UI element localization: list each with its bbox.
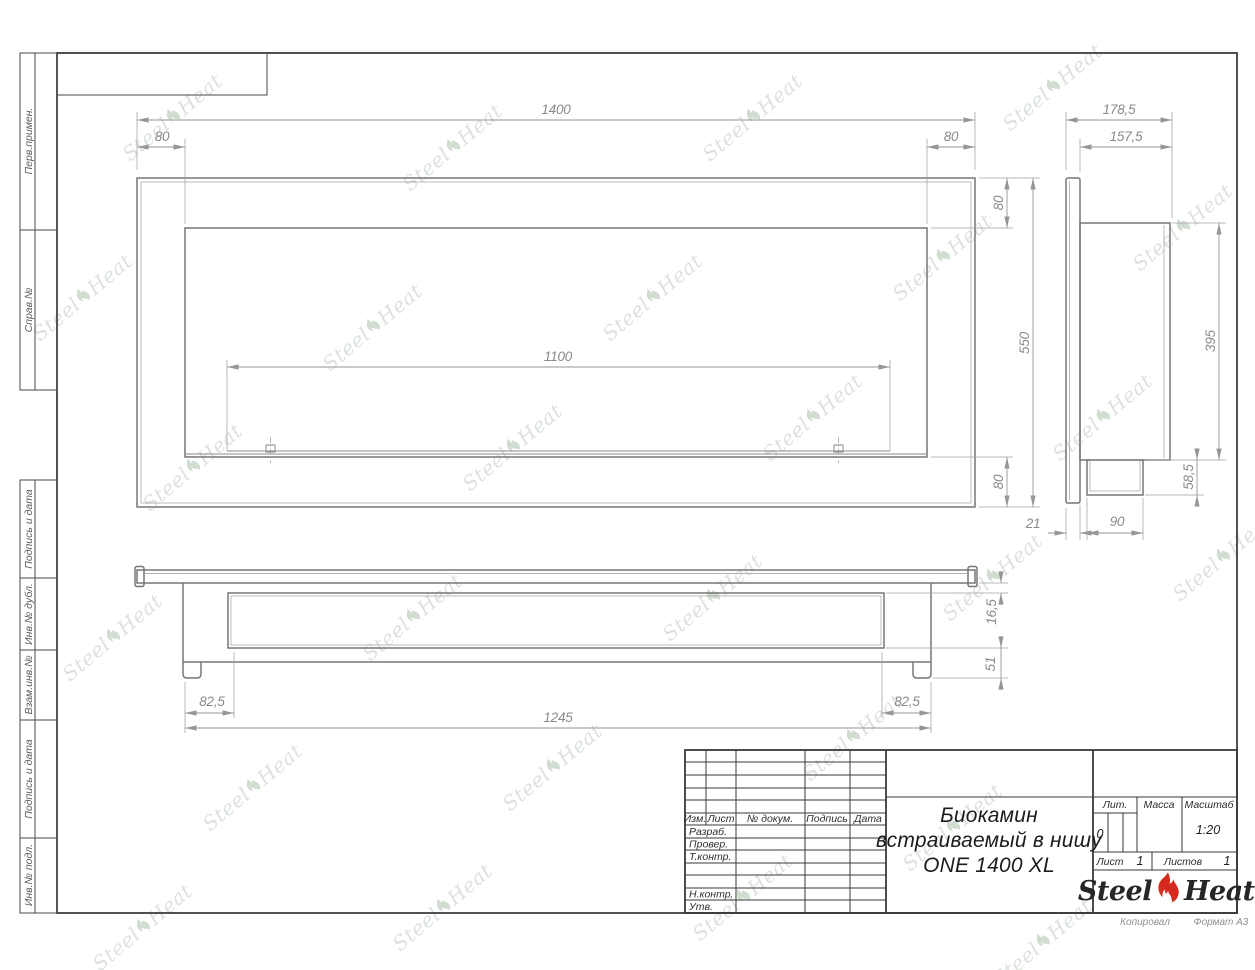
svg-text:Steel: Steel [498,763,555,816]
svg-text:Steel: Steel [698,113,755,166]
dim-front-offset-right: 80 [944,129,959,144]
th-izm: Изм. [684,813,706,825]
front-view [137,178,975,507]
svg-text:Heat: Heat [652,248,708,300]
svg-text:Steel: Steel [198,783,255,836]
copied-label: Копировал [1120,917,1170,928]
scale-label: Масштаб [1184,799,1234,811]
dim-front-width: 1400 [541,102,571,117]
lit-value: 0 [1097,827,1104,841]
svg-text:Heat: Heat [142,878,198,930]
dim-front-bottom: 80 [991,474,1006,489]
svg-text:Heat: Heat [992,528,1048,580]
svg-text:Heat: Heat [1102,368,1158,420]
dim-side-notch: 58,5 [1181,464,1196,490]
svg-text:Heat: Heat [452,98,508,150]
svg-text:Steel: Steel [658,593,715,646]
svg-text:Steel: Steel [58,633,115,686]
svg-text:Heat: Heat [942,208,998,260]
svg-text:Steel: Steel [88,923,145,970]
svg-text:Heat: Heat [512,398,568,450]
sheet-label: Лист [1095,856,1123,868]
svg-text:Steel: Steel [1168,553,1225,606]
dim-side-body: 395 [1203,329,1218,352]
dim-front-height: 550 [1017,331,1032,354]
margin-label-sprav-no: Справ.№ [23,288,35,333]
svg-text:Steel: Steel [388,903,445,956]
sheets-label: Листов [1163,856,1203,868]
doc-name-line3: ONE 1400 XL [923,854,1055,877]
svg-text:Steel: Steel [138,463,195,516]
th-doc: № докум. [747,813,793,825]
svg-text:Steel: Steel [988,938,1045,970]
scale-value: 1:20 [1196,823,1220,837]
dim-front-offset-left: 80 [155,129,170,144]
dim-front-opening: 1100 [544,349,573,364]
svg-text:Heat: Heat [752,68,808,120]
engineering-drawing-canvas: SteelHeatSteelHeatSteelHeatSteelHeatStee… [0,0,1255,970]
logo-heat-text: Heat [1183,876,1255,907]
th-list: Лист [706,813,734,825]
steelheat-logo: Steel Heat [1078,872,1255,907]
logo-steel-text: Steel [1078,876,1152,907]
margin-label-inv-podl: Инв.№ подл. [23,844,35,906]
lit-label: Лит. [1102,799,1128,811]
svg-text:Steel: Steel [1048,413,1105,466]
svg-text:Steel: Steel [358,613,415,666]
margin-labels: Перв.примен. Справ.№ Подпись и дата Инв.… [23,108,35,907]
svg-text:Steel: Steel [398,143,455,196]
svg-text:Steel: Steel [318,323,375,376]
svg-text:Steel: Steel [758,413,815,466]
dim-bottom-offset-right: 82,5 [894,694,920,709]
dim-bottom-offset-left: 82,5 [199,694,225,709]
flame-icon [1158,872,1178,902]
row-utv: Утв. [688,901,713,913]
margin-label-perv-primen: Перв.примен. [23,108,35,175]
svg-text:Steel: Steel [1128,223,1185,276]
row-nkontr: Н.контр. [689,889,733,901]
dim-bottom-foot: 51 [983,657,998,672]
svg-text:Heat: Heat [1052,38,1108,90]
svg-text:Steel: Steel [998,83,1055,136]
dim-side-plate: 21 [1025,516,1041,531]
svg-text:Heat: Heat [412,568,468,620]
th-date: Дата [853,813,882,825]
dim-front-top: 80 [991,195,1006,210]
margin-label-podpis-data-1: Подпись и дата [23,489,35,569]
doc-name-line2: встраиваемый в нишу [876,829,1103,852]
svg-text:Steel: Steel [598,293,655,346]
mass-label: Масса [1143,799,1174,811]
svg-text:Heat: Heat [252,738,308,790]
svg-text:Steel: Steel [798,733,855,786]
margin-label-podpis-data-2: Подпись и дата [23,739,35,819]
svg-text:Heat: Heat [112,588,168,640]
svg-text:Heat: Heat [742,848,798,900]
svg-text:Steel: Steel [888,253,945,306]
svg-text:Heat: Heat [552,718,608,770]
row-razrab: Разраб. [689,826,727,838]
th-sign: Подпись [806,813,848,825]
sheet-value: 1 [1137,854,1144,868]
svg-text:Heat: Heat [812,368,868,420]
blueprint-page: SteelHeatSteelHeatSteelHeatSteelHeatStee… [0,0,1255,970]
side-view-dimensions: 178,5 157,5 395 58,5 21 90 [1025,102,1226,540]
doc-name-line1: Биокамин [940,804,1038,827]
format-label: Формат А3 [1194,917,1249,928]
row-tkontr: Т.контр. [689,851,731,863]
svg-text:Heat: Heat [372,278,428,330]
dim-side-inner-depth: 157,5 [1110,129,1143,144]
title-block: Изм. Лист № докум. Подпись Дата Разраб. … [684,750,1255,928]
side-view [1066,178,1170,503]
row-prover: Провер. [689,839,728,851]
sheets-value: 1 [1224,854,1231,868]
bottom-view [135,567,977,679]
svg-text:Heat: Heat [82,248,138,300]
margin-label-inv-dubl: Инв.№ дубл. [23,583,35,645]
margin-label-vzam-inv: Взам.инв.№ [23,655,35,714]
svg-text:Heat: Heat [442,858,498,910]
svg-text:Heat: Heat [192,418,248,470]
dim-side-box: 90 [1110,514,1125,529]
dim-bottom-lip: 16,5 [984,599,999,625]
svg-text:Heat: Heat [172,68,228,120]
dim-side-depth: 178,5 [1103,102,1136,117]
dim-bottom-base: 1245 [543,710,573,725]
